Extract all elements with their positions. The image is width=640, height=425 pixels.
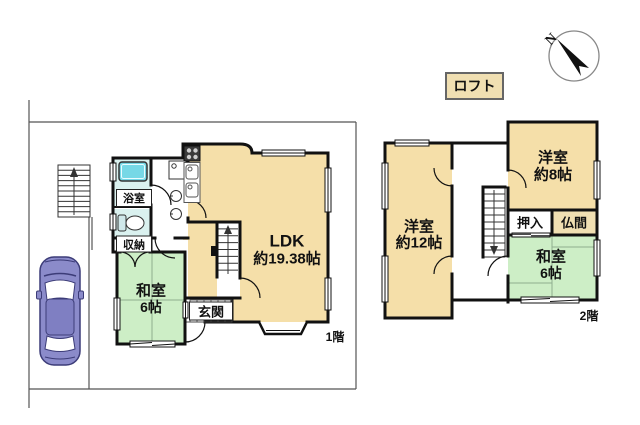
floorplan-image: ロフト N 浴室 収納 和室 6帖 玄関 LDK 約19.38帖 1階 洋室 約… [0,0,640,425]
ldk-name: LDK [270,233,305,250]
toilet-icon [118,215,144,231]
genkan-label-text: 玄関 [198,302,224,321]
west-room-name: 洋室 [404,220,434,235]
car-icon [37,257,84,365]
stove-icon [184,146,200,161]
floor1-tag: 1階 [326,331,345,343]
washitsu1-name: 和室 [136,284,166,299]
loft-badge-label: ロフト [454,76,496,96]
bathtub-icon [119,162,147,181]
washitsu1-size: 6帖 [140,300,162,314]
bathroom-label: 浴室 [116,189,152,207]
floorplan-drawing [0,0,640,425]
storage-label-text: 収納 [123,236,145,252]
west-room-size: 約12帖 [396,236,443,251]
bay-window [259,322,307,334]
storage-label: 収納 [116,236,152,253]
genkan-label: 玄関 [189,302,233,321]
washing-machine-icon [169,161,186,179]
washitsu2-size: 6帖 [540,266,562,280]
bathroom-label-text: 浴室 [123,190,145,206]
kitchen-sink-icon [184,163,200,203]
outdoor-stairs-icon [58,165,90,217]
second-floor-stairs-icon [483,187,505,257]
floor2-tag: 2階 [580,310,599,322]
ldk-size: 約19.38帖 [253,252,321,267]
washitsu2-name: 和室 [536,250,566,265]
east-room-name: 洋室 [538,151,568,166]
butsuma-label: 仏間 [561,217,587,230]
oshiire-label: 押入 [517,217,543,230]
east-room-size: 約8帖 [534,168,572,183]
loft-badge: ロフト [445,72,504,100]
